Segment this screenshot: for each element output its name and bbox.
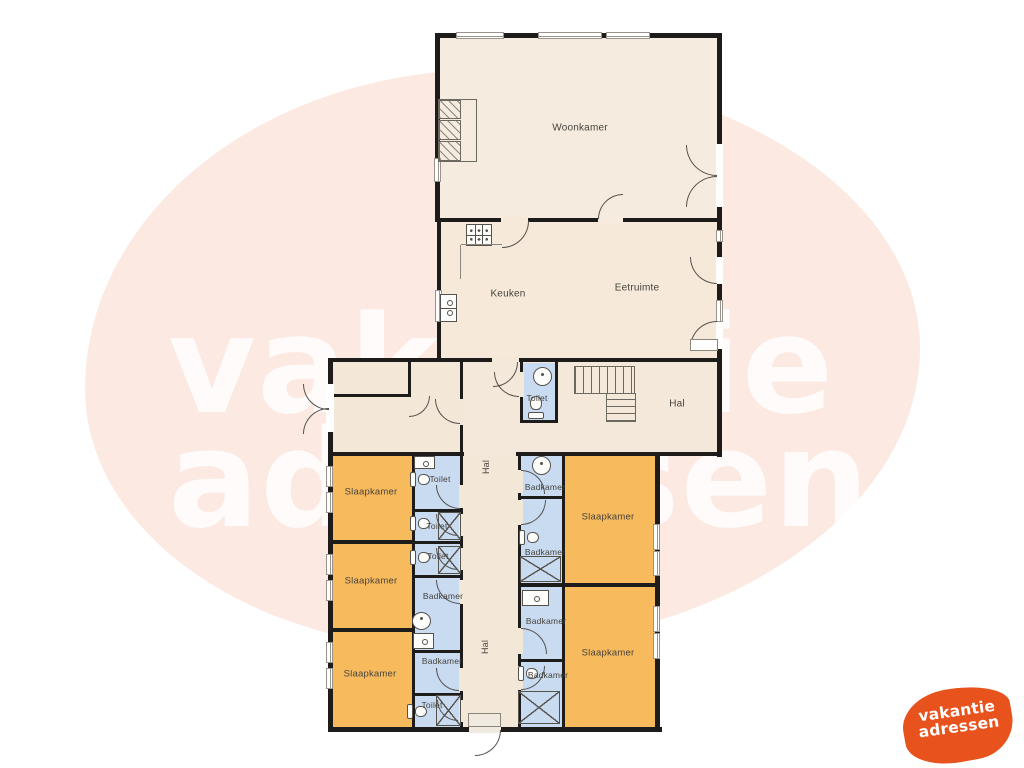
room-label: Badkamer	[526, 616, 566, 626]
wall	[562, 454, 565, 727]
fixture-wc	[519, 530, 539, 546]
wall	[408, 360, 411, 396]
wall	[655, 455, 660, 731]
fixture-sink	[414, 456, 435, 469]
fixture-shower	[520, 556, 561, 582]
window	[326, 668, 333, 689]
room-label: Toilet	[526, 393, 547, 403]
window	[653, 633, 660, 659]
fixture-sink-round	[532, 456, 551, 475]
wall	[412, 454, 415, 727]
wall	[435, 218, 719, 222]
wall	[328, 452, 464, 456]
fixture-hatch	[439, 100, 461, 119]
room-label: Keuken	[490, 289, 525, 300]
fixture-ksink	[440, 294, 457, 322]
fixture-stairs-h	[606, 393, 636, 422]
door-opening	[716, 144, 723, 207]
door-arc	[303, 384, 329, 410]
fixture-sink-round	[533, 367, 552, 386]
floorplan-page: vakantie adressen WoonkamerKeukenEetruim…	[0, 0, 1024, 768]
wall	[518, 583, 658, 587]
door-arc	[303, 408, 329, 434]
window	[716, 230, 723, 242]
wall	[516, 452, 722, 456]
wall	[328, 358, 722, 362]
room-slaapkamer-1	[331, 454, 414, 542]
room-label: Hal	[669, 399, 685, 410]
window	[716, 300, 723, 322]
wall	[412, 575, 462, 578]
fixture-sink-round	[412, 612, 431, 630]
wall	[555, 362, 558, 422]
window	[326, 580, 333, 601]
room-slaapkamer-3	[331, 632, 414, 729]
window	[326, 492, 333, 513]
room-label: Slaapkamer	[344, 669, 397, 680]
wall	[412, 541, 462, 544]
fixture-hatch	[439, 120, 461, 140]
fixture-stove	[466, 224, 492, 246]
window	[456, 32, 504, 39]
room-label: Toilet	[421, 700, 442, 710]
fixture-line	[460, 245, 461, 279]
window	[606, 32, 650, 39]
fixture-sill	[468, 713, 501, 727]
room-label: Badkamer	[423, 591, 463, 601]
wall	[328, 394, 411, 397]
room-label: Badkamer	[422, 656, 462, 666]
door-opening	[459, 668, 465, 691]
window	[326, 466, 333, 487]
room-label: Slaapkamer	[345, 487, 398, 498]
room-label: Woonkamer	[552, 123, 608, 134]
room-label: Eetruimte	[615, 283, 660, 294]
room-label: Hal	[480, 640, 490, 654]
room-label: Badkamer	[525, 547, 565, 557]
fixture-shower	[518, 691, 560, 724]
floorplan-image: WoonkamerKeukenEetruimteToiletHalHalHalS…	[0, 0, 1024, 768]
room-label: Toilet	[427, 551, 448, 561]
fixture-hatch	[439, 141, 461, 161]
room-label: Toilet	[429, 474, 450, 484]
room-label: Badkamer	[528, 670, 568, 680]
fixture-sink	[522, 590, 549, 606]
wall	[412, 650, 462, 653]
window	[538, 32, 602, 39]
room-label: Slaapkamer	[582, 648, 635, 659]
site-logo: vakantie adressen	[899, 684, 1017, 766]
wall	[328, 628, 415, 632]
wall	[328, 540, 415, 544]
room-hal-midden	[461, 454, 520, 729]
door-opening	[519, 372, 524, 397]
room-label: Slaapkamer	[582, 512, 635, 523]
fixture-wc	[410, 472, 430, 488]
fixture-line	[461, 244, 502, 245]
window	[653, 606, 660, 632]
fixture-stairs-v	[574, 366, 635, 394]
wall	[717, 33, 722, 457]
wall	[518, 496, 565, 499]
window	[653, 551, 660, 576]
fixture-sink	[413, 633, 434, 649]
room-label: Badkamer	[525, 482, 565, 492]
window	[326, 554, 333, 575]
room-label: Slaapkamer	[345, 576, 398, 587]
wall	[520, 420, 558, 423]
window	[326, 642, 333, 663]
wall	[518, 659, 565, 662]
fixture-step	[690, 339, 718, 351]
room-label: Hal	[481, 460, 491, 474]
window	[653, 524, 660, 550]
door-opening	[716, 257, 723, 284]
room-label: Toilet	[426, 521, 447, 531]
door-arc	[475, 730, 501, 756]
